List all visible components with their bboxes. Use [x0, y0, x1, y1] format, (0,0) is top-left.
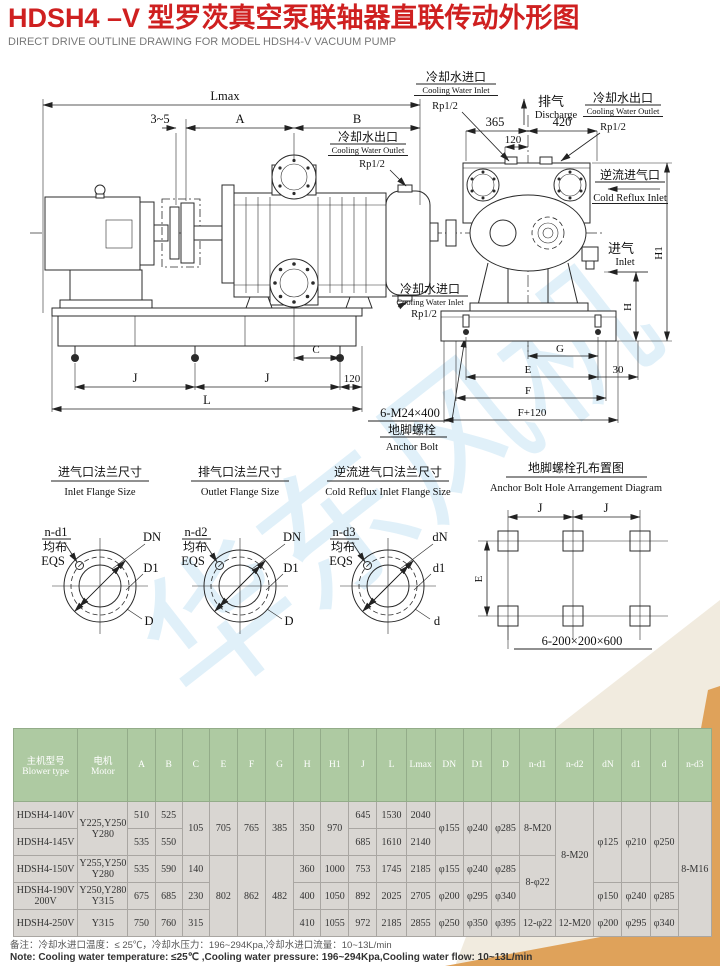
spec-cell: 1610: [377, 829, 406, 856]
inlet-label-cn: 进气: [608, 241, 634, 256]
flange2-eqs-en: EQS: [181, 554, 205, 568]
flange2-title-cn: 排气口法兰尺寸: [198, 464, 282, 479]
spec-cell: 410: [294, 910, 321, 937]
flange1-holes: n-d1: [45, 525, 68, 539]
table-row: HDSH4-250V Y315 750 760 315 410 1055 972…: [14, 910, 712, 937]
dim-g: G: [556, 343, 564, 355]
inlet-label-en: Inlet: [615, 257, 634, 268]
spec-header: J: [349, 729, 377, 802]
spec-cell: 1050: [321, 883, 349, 910]
spec-cell: 8-φ22: [520, 856, 556, 910]
anchor-dim-j1: J: [538, 501, 543, 515]
spec-header: n-d2: [556, 729, 594, 802]
ev-cooling-inlet-en: Cooling Water Inlet: [422, 85, 490, 95]
page-subtitle: DIRECT DRIVE OUTLINE DRAWING FOR MODEL H…: [8, 36, 580, 48]
spec-cell: 350: [294, 802, 321, 856]
spec-cell: 1000: [321, 856, 349, 883]
cooling-outlet-label-cn: 冷却水出口: [338, 130, 398, 144]
spec-cell: 645: [349, 802, 377, 829]
flange1-title-en: Inlet Flange Size: [64, 487, 135, 498]
motor: [45, 185, 154, 310]
discharge-label-cn: 排气: [538, 94, 564, 109]
flange2-d1: D1: [283, 561, 298, 575]
spec-cell: φ155: [435, 856, 463, 883]
spec-cell: 590: [155, 856, 182, 883]
coupling: [154, 119, 228, 267]
spec-cell: 2025: [377, 883, 406, 910]
spec-cell: φ285: [650, 883, 678, 910]
spec-cell: φ250: [650, 802, 678, 883]
spec-cell: 802: [209, 856, 237, 937]
ev-cooling-outlet-cn: 冷却水出口: [593, 91, 653, 105]
flange2-dn: DN: [283, 530, 301, 544]
cooling-outlet-size: Rp1/2: [359, 159, 385, 170]
anchor-title-en: Anchor Bolt Hole Arrangement Diagram: [490, 483, 662, 494]
spec-cell: HDSH4-140V: [14, 802, 78, 829]
flange1-d1: D1: [143, 561, 158, 575]
note-cn: 备注：冷却水进口温度：≤ 25℃，冷却水压力：196~294Kpa,冷却水进口流…: [10, 941, 532, 952]
reflux-label-en: Cold Reflux Inlet: [593, 193, 667, 204]
spec-table: 主机型号 Blower type 电机 Motor A B C E F G H …: [13, 728, 712, 937]
spec-cell: φ350: [463, 910, 491, 937]
spec-header: n-d3: [678, 729, 711, 802]
flange2-d: D: [284, 614, 293, 628]
dim-lmax: Lmax: [210, 89, 240, 103]
spec-cell: Y255,Y250 Y280: [78, 856, 128, 883]
flange3-title-en: Cold Reflux Inlet Flange Size: [325, 487, 451, 498]
spec-cell: Y250,Y280 Y315: [78, 883, 128, 910]
spec-cell: 8-M20: [556, 802, 594, 910]
spec-header: D: [491, 729, 519, 802]
dim-j2: J: [265, 371, 270, 385]
spec-cell: 140: [182, 856, 209, 883]
spec-cell: HDSH4-190V 200V: [14, 883, 78, 910]
spec-header: H1: [321, 729, 349, 802]
spec-cell: 685: [155, 883, 182, 910]
dim-f120: F+120: [518, 407, 547, 419]
spec-cell: φ125: [594, 802, 622, 883]
spec-cell: 862: [237, 856, 265, 937]
spec-cell: 385: [266, 802, 294, 856]
anchor-bolt-en: Anchor Bolt: [386, 442, 438, 453]
spec-cell: 2185: [406, 856, 435, 883]
spec-cell: 705: [209, 802, 237, 856]
spec-cell: 2855: [406, 910, 435, 937]
spec-cell: φ295: [622, 910, 650, 937]
spec-cell: φ250: [435, 910, 463, 937]
spec-cell: 2705: [406, 883, 435, 910]
spec-header: d1: [622, 729, 650, 802]
spec-cell: φ295: [463, 883, 491, 910]
flange3-title-cn: 逆流进气口法兰尺寸: [334, 464, 442, 479]
footnotes: 备注：冷却水进口温度：≤ 25℃，冷却水压力：196~294Kpa,冷却水进口流…: [10, 941, 532, 963]
flange3-eqs-en: EQS: [329, 554, 353, 568]
note-en: Note: Cooling water temperature: ≤25℃ ,C…: [10, 952, 532, 964]
flange1-eqs-en: EQS: [41, 554, 65, 568]
spec-cell: 760: [155, 910, 182, 937]
spec-header: d: [650, 729, 678, 802]
spec-header: C: [182, 729, 209, 802]
spec-cell: 535: [128, 829, 155, 856]
spec-cell: HDSH4-250V: [14, 910, 78, 937]
spec-cell: φ285: [491, 802, 519, 856]
anchor-dim-j2: J: [604, 501, 609, 515]
spec-cell: φ340: [650, 910, 678, 937]
spec-header: Lmax: [406, 729, 435, 802]
spec-header: H: [294, 729, 321, 802]
dim-365: 365: [486, 115, 505, 129]
spec-cell: 230: [182, 883, 209, 910]
dim-b: B: [353, 112, 361, 126]
spec-cell: φ200: [435, 883, 463, 910]
spec-cell: φ210: [622, 802, 650, 883]
dim-e: E: [525, 364, 532, 376]
page-title: HDSH4 –V 型罗茨真空泵联轴器直联传动外形图: [8, 4, 580, 34]
spec-cell: 510: [128, 802, 155, 829]
spec-cell: 315: [182, 910, 209, 937]
spec-cell: 753: [349, 856, 377, 883]
spec-header: A: [128, 729, 155, 802]
flange2-title-en: Outlet Flange Size: [201, 487, 279, 498]
flange2-eqs-cn: 均布: [183, 540, 207, 554]
spec-header: D1: [463, 729, 491, 802]
spec-cell: Y225,Y250 Y280: [78, 802, 128, 856]
dim-c: C: [312, 344, 319, 356]
spec-cell: 400: [294, 883, 321, 910]
spec-cell: 2140: [406, 829, 435, 856]
spec-header: DN: [435, 729, 463, 802]
dim-l: L: [203, 393, 211, 407]
dim-120b: 120: [505, 134, 522, 146]
spec-cell: φ240: [463, 856, 491, 883]
anchor-bolt-cn: 地脚螺栓: [388, 422, 436, 437]
dim-gap: 3~5: [150, 112, 169, 126]
spec-header: L: [377, 729, 406, 802]
spec-cell: 750: [128, 910, 155, 937]
cooling-inlet-label-cn: 冷却水进口: [400, 282, 460, 296]
spec-cell: φ200: [594, 910, 622, 937]
spec-cell: 550: [155, 829, 182, 856]
spec-cell: 1055: [321, 910, 349, 937]
spec-header: B: [155, 729, 182, 802]
spec-header-row: 主机型号 Blower type 电机 Motor A B C E F G H …: [14, 729, 712, 802]
spec-cell: HDSH4-145V: [14, 829, 78, 856]
lifting-hooks: [71, 346, 344, 362]
spec-cell: φ150: [594, 883, 622, 910]
spec-cell: 675: [128, 883, 155, 910]
anchor-spec: 6-200×200×600: [542, 634, 623, 648]
dim-a: A: [235, 112, 244, 126]
spec-cell: 2185: [377, 910, 406, 937]
spec-cell: 2040: [406, 802, 435, 829]
spec-cell: 360: [294, 856, 321, 883]
flange3-eqs-cn: 均布: [331, 540, 355, 554]
technical-drawing: 华东风机: [0, 55, 720, 715]
spec-cell: Y315: [78, 910, 128, 937]
spec-cell: 12-M20: [556, 910, 594, 937]
spec-cell: φ240: [463, 802, 491, 856]
dim-j1: J: [133, 371, 138, 385]
anchor-dim-e: E: [473, 575, 485, 582]
ev-cooling-outlet-size: Rp1/2: [600, 122, 626, 133]
flange3-d: d: [434, 614, 441, 628]
reflux-label-cn: 逆流进气口: [600, 167, 660, 182]
dim-h1: H1: [653, 246, 665, 259]
flange1-d: D: [144, 614, 153, 628]
spec-cell: 12-φ22: [520, 910, 556, 937]
spec-cell: 1530: [377, 802, 406, 829]
cooling-inlet-size: Rp1/2: [411, 309, 437, 320]
spec-cell: 970: [321, 802, 349, 856]
flange3-holes: n-d3: [333, 525, 356, 539]
anchor-title-cn: 地脚螺栓孔布置图: [528, 460, 624, 475]
spec-header: 主机型号 Blower type: [14, 729, 78, 802]
spec-cell: 482: [266, 856, 294, 937]
ev-cooling-inlet-size: Rp1/2: [432, 101, 458, 112]
spec-cell: 765: [237, 802, 265, 856]
spec-header: G: [266, 729, 294, 802]
spec-cell: 535: [128, 856, 155, 883]
ev-cooling-outlet-en: Cooling Water Outlet: [587, 106, 660, 116]
spec-cell: 972: [349, 910, 377, 937]
spec-header: 电机 Motor: [78, 729, 128, 802]
flange3-dn: dN: [432, 530, 447, 544]
dim-f: F: [525, 385, 531, 397]
spec-cell: 685: [349, 829, 377, 856]
flange1-eqs-cn: 均布: [43, 540, 67, 554]
anchor-bolt-spec: 6-M24×400: [380, 406, 440, 420]
spec-cell: 525: [155, 802, 182, 829]
spec-cell: 892: [349, 883, 377, 910]
spec-cell: 105: [182, 802, 209, 856]
table-row: HDSH4-190V 200V Y250,Y280 Y315 675 685 2…: [14, 883, 712, 910]
cooling-outlet-label-en: Cooling Water Outlet: [332, 145, 405, 155]
spec-cell: φ240: [622, 883, 650, 910]
spec-cell: φ285: [491, 856, 519, 883]
spec-header: dN: [594, 729, 622, 802]
spec-cell: φ155: [435, 802, 463, 856]
spec-header: E: [209, 729, 237, 802]
dim-120: 120: [344, 373, 361, 385]
flange1-title-cn: 进气口法兰尺寸: [58, 464, 142, 479]
spec-header: F: [237, 729, 265, 802]
spec-cell: φ395: [491, 910, 519, 937]
page: HDSH4 –V 型罗茨真空泵联轴器直联传动外形图 DIRECT DRIVE O…: [0, 0, 720, 966]
discharge-label-en: Discharge: [535, 110, 578, 121]
anchor-bolt-diagram: 地脚螺栓孔布置图 Anchor Bolt Hole Arrangement Di…: [473, 460, 668, 649]
flange3-d1: d1: [433, 561, 446, 575]
spec-header: n-d1: [520, 729, 556, 802]
table-row: HDSH4-140V Y225,Y250 Y280 510 525 105 70…: [14, 802, 712, 829]
flange1-dn: DN: [143, 530, 161, 544]
ev-cooling-inlet-cn: 冷却水进口: [426, 70, 486, 84]
spec-cell: φ340: [491, 883, 519, 910]
spec-cell: 8-M20: [520, 802, 556, 856]
dim-h: H: [622, 303, 634, 311]
spec-cell: 8-M16: [678, 802, 711, 937]
spec-cell: HDSH4-150V: [14, 856, 78, 883]
flange2-holes: n-d2: [185, 525, 208, 539]
base-skirt: [441, 311, 616, 341]
spec-cell: 1745: [377, 856, 406, 883]
header: HDSH4 –V 型罗茨真空泵联轴器直联传动外形图 DIRECT DRIVE O…: [8, 4, 580, 48]
